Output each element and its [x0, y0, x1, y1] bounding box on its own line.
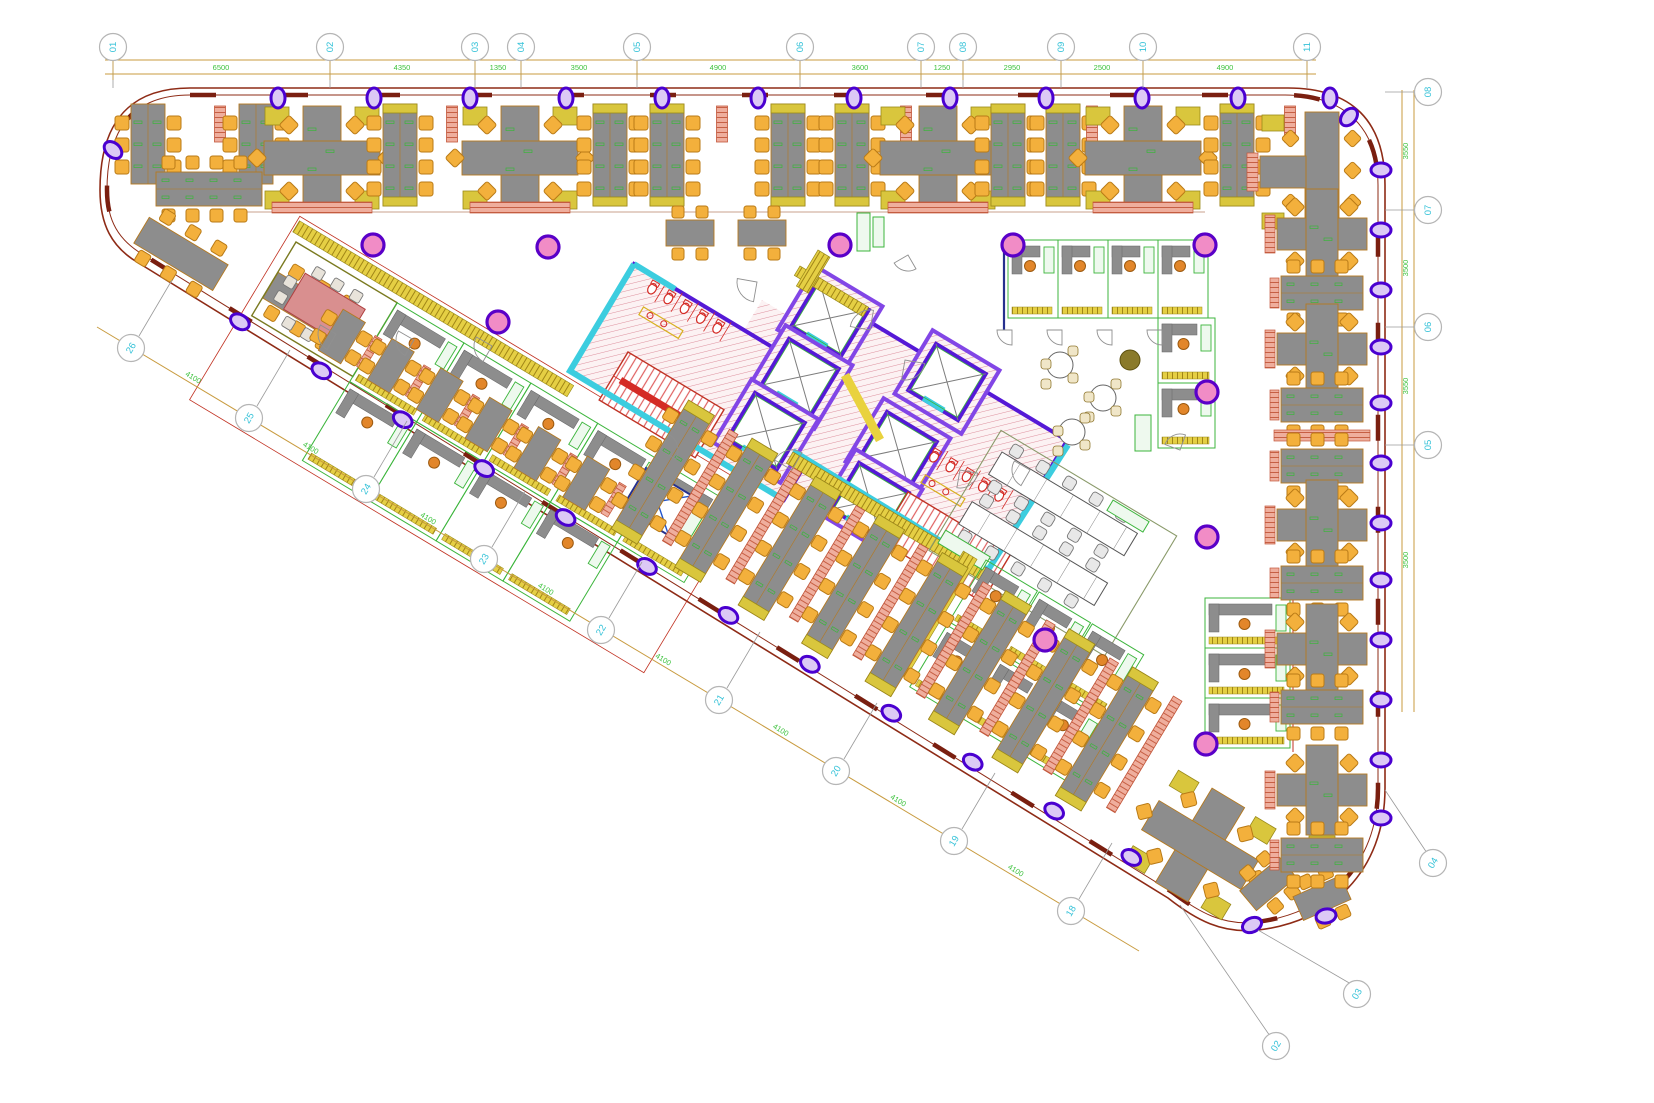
chair: [234, 209, 247, 222]
office-chair: [1178, 404, 1189, 415]
chair: [1311, 822, 1324, 835]
wall-column: [847, 88, 861, 108]
chair: [167, 116, 181, 130]
wall-column-oval: [1371, 223, 1391, 237]
desk-cluster-t: [863, 106, 1013, 213]
chair: [1335, 260, 1348, 273]
dimension-text: 4900: [710, 63, 727, 72]
grid-bubble: 22: [588, 617, 615, 644]
grid-bubble: 04: [1420, 850, 1447, 877]
end-cabinet: [650, 197, 684, 206]
grid-bubble: 19: [941, 828, 968, 855]
wall-column-oval: [1039, 88, 1053, 108]
chair: [1311, 433, 1324, 446]
chair: [1136, 803, 1153, 820]
office-chair: [1239, 619, 1250, 630]
chair: [1311, 875, 1324, 888]
cabinet: [1135, 415, 1151, 451]
grid-bubble: 11: [1294, 34, 1321, 61]
chair: [1287, 822, 1300, 835]
chair: [577, 138, 591, 152]
screen-partition: [272, 202, 372, 213]
wall-column-oval: [367, 88, 381, 108]
wall-column-oval: [1371, 573, 1391, 587]
wall-column: [1135, 88, 1149, 108]
screen-partition: [447, 106, 458, 142]
chair: [1204, 182, 1218, 196]
end-cabinet: [1262, 115, 1284, 131]
chair: [1311, 674, 1324, 687]
pink-column-circle: [1196, 381, 1218, 403]
grid-bubble-label: 05: [632, 42, 643, 53]
wall-column-oval: [1371, 753, 1391, 767]
grid-bubble-label: 11: [1302, 42, 1313, 52]
office-chair: [560, 535, 575, 550]
chair: [419, 116, 433, 130]
chair: [686, 182, 700, 196]
chair: [819, 160, 833, 174]
chair: [1287, 674, 1300, 687]
grid-bubble-label: 05: [1423, 440, 1434, 451]
office-desk: [1209, 704, 1219, 732]
grid-bubble-label: 09: [1056, 42, 1067, 53]
wall-column: [1039, 88, 1053, 108]
grid-bubble: 06: [787, 34, 814, 61]
pink-column: [1002, 234, 1024, 256]
desk: [1085, 141, 1201, 175]
dimension-text: 3550: [1401, 378, 1410, 395]
wall-column: [751, 88, 765, 108]
pink-column: [362, 234, 384, 256]
grid-bubble-label: 10: [1138, 42, 1149, 53]
chair: [1030, 160, 1044, 174]
chair: [634, 116, 648, 130]
screen-partition: [1265, 630, 1275, 668]
screen-partition: [1093, 202, 1193, 213]
chair: [1335, 674, 1348, 687]
chair: [819, 138, 833, 152]
chair: [1311, 372, 1324, 385]
office-desk: [1062, 246, 1072, 274]
office-desk: [1209, 654, 1219, 682]
dimension-text: 4100: [889, 792, 908, 808]
wall-column-oval: [1231, 88, 1245, 108]
chair: [367, 116, 381, 130]
storage-strip: [1162, 372, 1209, 379]
chair: [1204, 116, 1218, 130]
chair: [755, 138, 769, 152]
chair: [223, 116, 237, 130]
chair: [819, 116, 833, 130]
wall-column-oval: [943, 88, 957, 108]
chair: [1311, 727, 1324, 740]
office-desk: [1112, 246, 1122, 274]
wall-column: [367, 88, 381, 108]
chair: [1084, 392, 1094, 402]
office-chair: [1025, 261, 1036, 272]
chair: [975, 182, 989, 196]
chair: [1111, 406, 1121, 416]
wall-column-oval: [1371, 811, 1391, 825]
grid-bubble: 23: [471, 546, 498, 573]
screen-partition: [1270, 840, 1279, 870]
cabinet: [873, 217, 884, 247]
chair: [696, 248, 708, 260]
dimension-text: 3600: [852, 63, 869, 72]
chair: [115, 116, 129, 130]
dimension-text: 3500: [1401, 552, 1410, 569]
grid-bubble: 03: [462, 34, 489, 61]
grid-bubble: 20: [823, 758, 850, 785]
office-desk: [1162, 324, 1172, 352]
dimension-text: 3500: [1401, 260, 1410, 277]
chair: [210, 156, 223, 169]
chair: [367, 182, 381, 196]
wall-column: [1371, 811, 1391, 825]
wall-column: [1371, 223, 1391, 237]
chair: [975, 116, 989, 130]
chair: [744, 206, 756, 218]
chair: [419, 160, 433, 174]
chair: [696, 206, 708, 218]
dimension-text: 4350: [394, 63, 411, 72]
pink-column: [1195, 733, 1217, 755]
pink-column: [829, 234, 851, 256]
storage-strip: [1112, 307, 1152, 314]
chair: [672, 206, 684, 218]
storage-strip: [1012, 307, 1052, 314]
desk: [1260, 156, 1306, 188]
end-cabinet: [593, 197, 627, 206]
pink-column-circle: [1195, 733, 1217, 755]
desk-cluster-t: [1068, 106, 1218, 213]
chair: [768, 248, 780, 260]
grid-bubble: 03: [1344, 981, 1371, 1008]
desk: [666, 220, 714, 246]
screen-partition: [1270, 568, 1279, 598]
end-cabinet: [835, 197, 869, 206]
grid-bubble: 01: [100, 34, 127, 61]
pink-column-circle: [537, 236, 559, 258]
wall-column-oval: [1371, 340, 1391, 354]
office-chair: [1178, 339, 1189, 350]
cabinet: [857, 213, 870, 251]
storage-strip: [1162, 307, 1202, 314]
grid-line: [844, 703, 877, 759]
office-desk: [1162, 389, 1172, 417]
wall-column-oval: [1371, 516, 1391, 530]
dimension-text: 2500: [1094, 63, 1111, 72]
wall-column-oval: [1135, 88, 1149, 108]
chair: [1335, 372, 1348, 385]
grid-bubble-label: 04: [516, 42, 527, 53]
storage-strip: [1062, 307, 1102, 314]
chair: [1111, 379, 1121, 389]
pink-column-circle: [1002, 234, 1024, 256]
chair: [1180, 791, 1197, 808]
chair: [1030, 116, 1044, 130]
chair: [975, 160, 989, 174]
office-desk: [1162, 246, 1172, 274]
end-cabinet: [991, 104, 1025, 113]
chair: [634, 182, 648, 196]
grid-bubble: 26: [118, 335, 145, 362]
wall-column-oval: [1371, 163, 1391, 177]
screen-partition: [888, 202, 988, 213]
wall-column-oval: [1371, 396, 1391, 410]
wall-column: [1371, 516, 1391, 530]
wall-column-oval: [751, 88, 765, 108]
floor-plan-canvas: 0102030405060708091011650043501350350049…: [0, 0, 1654, 1103]
dimension-text: 4100: [1006, 862, 1025, 878]
chair: [186, 156, 199, 169]
end-cabinet: [383, 104, 417, 113]
wall-column-oval: [559, 88, 573, 108]
chair: [1041, 379, 1051, 389]
grid-line: [1258, 930, 1351, 984]
grid-line: [139, 280, 172, 336]
dimension-text: 2950: [1004, 63, 1021, 72]
screen-partition: [1265, 506, 1275, 544]
office-chair: [493, 495, 508, 510]
chair: [367, 160, 381, 174]
pink-column: [487, 311, 509, 333]
chair: [1146, 848, 1163, 865]
dimension-text: 4100: [301, 440, 320, 456]
grid-bubble: 21: [706, 687, 733, 714]
chair: [1335, 550, 1348, 563]
office-chair: [1239, 719, 1250, 730]
grid-bubble: 06: [1415, 314, 1442, 341]
desk: [1306, 745, 1338, 835]
chair: [634, 160, 648, 174]
chair: [167, 138, 181, 152]
storage-strip: [1209, 737, 1284, 744]
dimension-text: 1250: [934, 63, 951, 72]
chair: [1287, 433, 1300, 446]
wall-column: [655, 88, 669, 108]
screen-partition: [1270, 451, 1279, 481]
chair: [1053, 426, 1063, 436]
grid-bubble-label: 06: [1423, 322, 1434, 333]
wall-column-oval: [1323, 88, 1337, 108]
wall-column: [1371, 633, 1391, 647]
pink-column: [1034, 629, 1056, 651]
chair: [744, 248, 756, 260]
chair: [819, 182, 833, 196]
chair: [686, 138, 700, 152]
pink-column: [1194, 234, 1216, 256]
chair: [234, 156, 247, 169]
grid-bubble-label: 07: [916, 42, 927, 53]
screen-partition: [1270, 692, 1279, 722]
cabinet: [1144, 247, 1154, 273]
grid-line: [727, 632, 760, 688]
grid-bubble-label: 06: [795, 42, 806, 53]
chair: [755, 182, 769, 196]
grid-bubble-label: 07: [1423, 205, 1434, 216]
office-chair: [1175, 261, 1186, 272]
end-cabinet: [771, 197, 805, 206]
grid-bubble-label: 08: [958, 42, 969, 53]
grid-bubble-label: 01: [108, 42, 119, 53]
chair: [755, 160, 769, 174]
chair: [1068, 346, 1078, 356]
screen-partition: [1270, 390, 1279, 420]
chair: [223, 138, 237, 152]
wall-column: [1371, 753, 1391, 767]
grid-bubble: 25: [236, 405, 263, 432]
pink-column-circle: [1034, 629, 1056, 651]
wall-column: [1371, 283, 1391, 297]
chair: [1080, 440, 1090, 450]
wall-column: [463, 88, 477, 108]
pink-column-circle: [487, 311, 509, 333]
desk: [738, 220, 786, 246]
grid-bubble: 04: [508, 34, 535, 61]
end-cabinet: [383, 197, 417, 206]
wall-column: [943, 88, 957, 108]
dimension-text: 1350: [490, 63, 507, 72]
chair: [1311, 550, 1324, 563]
chair: [1030, 182, 1044, 196]
wall-column: [1371, 573, 1391, 587]
grid-bubble-label: 08: [1423, 87, 1434, 98]
chair: [367, 138, 381, 152]
office-chair: [360, 415, 375, 430]
chair: [577, 160, 591, 174]
dimension-text: 3500: [571, 63, 588, 72]
office-chair: [1075, 261, 1086, 272]
grid-bubble: 24: [353, 476, 380, 503]
chair: [1334, 904, 1351, 921]
wall-column-oval: [463, 88, 477, 108]
grid-bubble: 08: [1415, 79, 1442, 106]
chair: [1287, 260, 1300, 273]
dimension-text: 6500: [213, 63, 230, 72]
chair: [419, 138, 433, 152]
pink-column: [1196, 526, 1218, 548]
chair: [1041, 359, 1051, 369]
wall-column-oval: [1371, 693, 1391, 707]
chair: [1204, 138, 1218, 152]
wall-column: [1323, 88, 1337, 108]
chair: [975, 138, 989, 152]
wall-column-oval: [1371, 283, 1391, 297]
grid-line: [257, 350, 290, 406]
screen-partition: [1270, 278, 1279, 308]
office-desk: [1209, 604, 1219, 632]
wall-column-oval: [655, 88, 669, 108]
chair: [768, 206, 780, 218]
chair: [1287, 372, 1300, 385]
dimension-text: 4900: [1217, 63, 1234, 72]
chair: [1335, 727, 1348, 740]
cabinet: [1201, 325, 1211, 351]
dimension-text: 4100: [771, 722, 790, 738]
wall-column: [1371, 340, 1391, 354]
floor-plan: 0102030405060708091011650043501350350049…: [0, 0, 1654, 1103]
screen-partition: [1265, 215, 1275, 253]
grid-bubble: 02: [317, 34, 344, 61]
grid-line: [609, 562, 642, 618]
wall-column: [1371, 163, 1391, 177]
pink-column-circle: [362, 234, 384, 256]
grid-bubble: 07: [908, 34, 935, 61]
wall-column: [1231, 88, 1245, 108]
chair: [1335, 875, 1348, 888]
end-cabinet: [1220, 197, 1254, 206]
chair: [686, 160, 700, 174]
cabinet: [1044, 247, 1054, 273]
grid-bubble: 10: [1130, 34, 1157, 61]
chair: [672, 248, 684, 260]
wall-column: [559, 88, 573, 108]
chair: [1335, 433, 1348, 446]
pink-column-circle: [829, 234, 851, 256]
chair: [1335, 822, 1348, 835]
chair: [1053, 446, 1063, 456]
wall-column: [1371, 693, 1391, 707]
pink-column-circle: [1196, 526, 1218, 548]
desk: [462, 141, 578, 175]
wall-column: [271, 88, 285, 108]
chair: [1030, 138, 1044, 152]
grid-bubble-label: 03: [470, 42, 481, 53]
dimension-text: 3550: [1401, 143, 1410, 160]
wall-column-oval: [1371, 633, 1391, 647]
grid-line: [374, 421, 407, 477]
desk-cluster-t: [445, 106, 595, 213]
desk: [264, 141, 380, 175]
pink-column-circle: [1194, 234, 1216, 256]
grid-bubble: 08: [950, 34, 977, 61]
chair: [686, 116, 700, 130]
cabinet: [1276, 605, 1286, 631]
chair: [1203, 882, 1220, 899]
storage-strip: [508, 574, 570, 615]
chair: [1237, 825, 1254, 842]
screen-partition: [717, 106, 728, 142]
wall-column-oval: [847, 88, 861, 108]
grid-bubble: 02: [1263, 1033, 1290, 1060]
round-table: [1120, 350, 1140, 370]
chair: [1287, 550, 1300, 563]
chair: [1287, 727, 1300, 740]
pink-column: [1196, 381, 1218, 403]
chair: [1311, 260, 1324, 273]
wall-column-oval: [1371, 456, 1391, 470]
end-cabinet: [593, 104, 627, 113]
chair: [1068, 373, 1078, 383]
chair: [1256, 138, 1270, 152]
chair: [1287, 875, 1300, 888]
grid-bubble: 18: [1058, 898, 1085, 925]
dimension-text: 4100: [654, 651, 673, 667]
wall-column-oval: [271, 88, 285, 108]
grid-bubble: 09: [1048, 34, 1075, 61]
office-chair: [1125, 261, 1136, 272]
chair: [419, 182, 433, 196]
screen-partition: [1247, 153, 1258, 191]
chair: [577, 182, 591, 196]
cabinet: [1094, 247, 1104, 273]
screen-partition: [1265, 771, 1275, 809]
grid-bubble: 05: [624, 34, 651, 61]
chair: [634, 138, 648, 152]
chair: [186, 209, 199, 222]
office-chair: [1239, 669, 1250, 680]
